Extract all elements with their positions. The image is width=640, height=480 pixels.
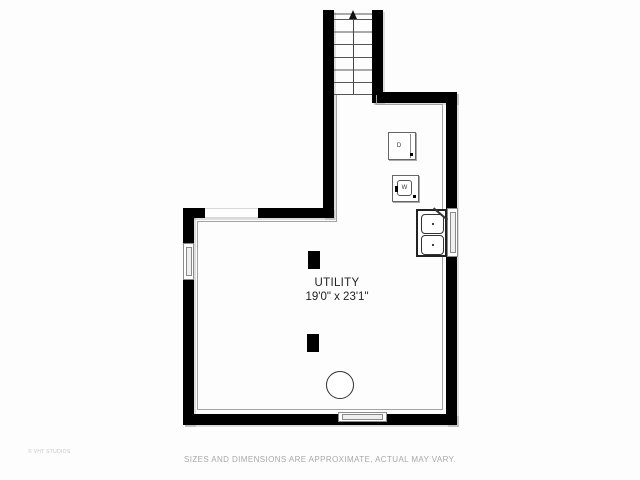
stair-direction-line (353, 16, 354, 94)
sink-drain (432, 244, 434, 246)
washer-knob (413, 195, 416, 198)
room-outline-top-right (377, 104, 443, 105)
support-post (307, 334, 319, 352)
stair-right-wall (372, 10, 383, 103)
support-post (308, 251, 320, 269)
sink-drain (432, 223, 434, 225)
window-right (447, 208, 458, 257)
sink-basin-bottom (421, 235, 444, 255)
window-mullion (186, 247, 192, 276)
water-heater (326, 371, 354, 399)
room-name: UTILITY (267, 276, 407, 290)
room-label: UTILITY 19'0" x 23'1" (267, 276, 407, 304)
wall-opening (205, 208, 258, 218)
washer-drum: W (397, 180, 412, 196)
stairs-up-arrow-icon (349, 10, 357, 19)
window-bottom (338, 412, 387, 422)
window-left (183, 243, 194, 280)
dryer-label: D (389, 143, 409, 149)
watermark-text: © VHT STUDIOS (28, 449, 71, 455)
dryer-knob (410, 153, 413, 156)
dryer: D (388, 132, 416, 160)
stair-left-wall (323, 10, 334, 218)
room-dimensions: 19'0" x 23'1" (267, 290, 407, 304)
washer-label: W (398, 185, 411, 191)
room-outline-lower-left-top (197, 221, 336, 222)
right-wall (446, 92, 457, 425)
room-outline-stair-right (376, 95, 377, 105)
washer-detail (395, 186, 398, 192)
sink-basin-top (421, 214, 444, 234)
window-mullion (342, 414, 383, 420)
window-mullion (450, 212, 456, 253)
left-wall (183, 208, 194, 425)
washer: W (392, 175, 419, 202)
room-outline-right (442, 104, 443, 410)
top-right-wall (372, 92, 457, 103)
disclaimer-text: SIZES AND DIMENSIONS ARE APPROXIMATE, AC… (0, 455, 640, 464)
room-outline-stair-left (336, 95, 337, 222)
floor-plan: D W UTILITY 19'0" x 23'1" SIZES AND DIME… (0, 0, 640, 480)
room-outline-left (197, 221, 198, 410)
bottom-wall (183, 414, 457, 425)
room-outline-bottom (197, 409, 443, 410)
